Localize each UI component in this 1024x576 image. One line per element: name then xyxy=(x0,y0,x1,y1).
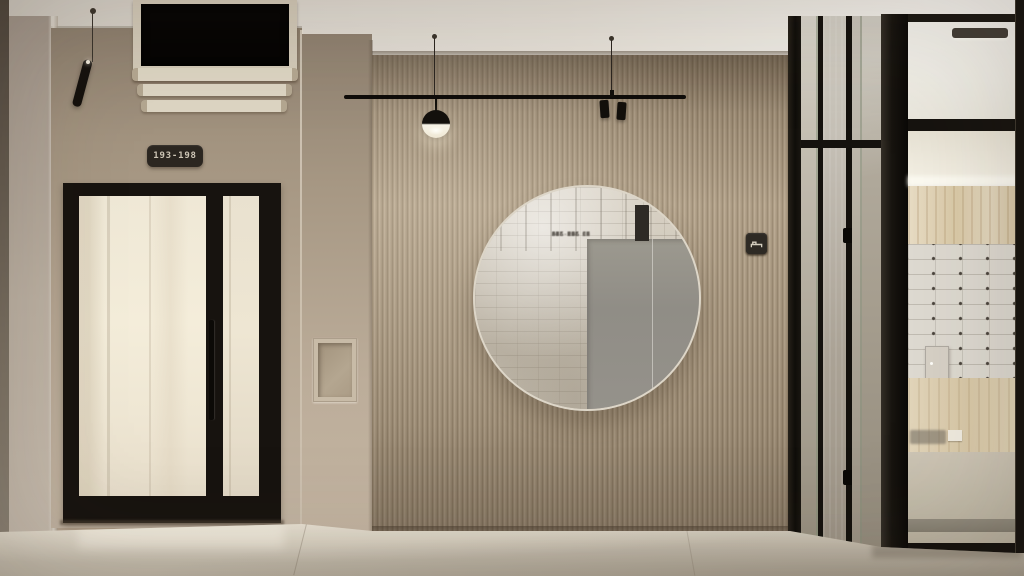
room-ceiling-light xyxy=(952,28,1008,38)
light-track-bar xyxy=(344,95,686,99)
floor-seam xyxy=(686,526,696,575)
mid-wall xyxy=(302,34,372,532)
directory-row: 433-440 xyxy=(552,229,579,240)
left-column xyxy=(9,16,51,536)
lobby-render: 193-198 310-345 346-352 353-360 361-368 xyxy=(0,0,1024,576)
room-wall-card xyxy=(948,430,962,441)
room-upper-wall xyxy=(908,131,1017,181)
mirror-reflection-gray-panel xyxy=(587,239,701,411)
partition-glass-pane xyxy=(852,16,862,556)
partition-transom-bar xyxy=(908,119,1017,131)
pendant-ceiling-mount xyxy=(90,8,96,14)
door-threshold-shadow xyxy=(60,520,284,525)
spotlight-mount xyxy=(610,90,614,97)
diffuser-louver xyxy=(132,68,298,81)
wayfinding-signs xyxy=(746,233,791,277)
cove-light-glow xyxy=(908,176,1017,186)
track-spotlight xyxy=(599,100,609,119)
track-suspension-cable xyxy=(611,40,612,95)
mirror-reflected-fixture xyxy=(635,205,649,241)
globe-pendant-lamp xyxy=(422,110,450,138)
wall-niche xyxy=(313,338,357,402)
floor-seam xyxy=(293,521,308,576)
deposit-box-room xyxy=(908,14,1017,556)
partition-edge-post xyxy=(1015,0,1024,576)
unit-range-label: 193-198 xyxy=(153,151,197,161)
track-suspension-cable xyxy=(434,38,435,95)
door-sidelite-glass xyxy=(223,196,259,496)
open-deposit-box-door xyxy=(925,346,949,379)
partition-transom-rail xyxy=(801,140,881,148)
door-handle xyxy=(209,320,214,420)
mirror-reflected-directory-numbers: 310-345 346-352 353-360 361-368 369-376 … xyxy=(501,229,579,375)
bench-icon xyxy=(749,236,764,251)
room-wood-band xyxy=(908,186,1017,244)
sign-bench xyxy=(746,233,767,254)
unit-range-sign: 193-198 xyxy=(147,145,203,167)
ceiling-display-panel xyxy=(141,4,289,66)
partition-glass-pane xyxy=(801,16,818,556)
room-wall-label xyxy=(910,430,946,444)
pendant-light-glint xyxy=(86,60,90,64)
left-wall-dark-strip xyxy=(0,0,9,576)
pendant-cable xyxy=(92,12,93,62)
wall-niche-recess xyxy=(318,343,352,397)
partition-glass-pane xyxy=(862,16,881,556)
round-mirror: 310-345 346-352 353-360 361-368 369-376 … xyxy=(473,185,701,411)
track-spotlight xyxy=(616,102,626,121)
door-glass-panel xyxy=(79,196,206,496)
entrance-door xyxy=(63,183,281,523)
partition-top-rail xyxy=(908,14,1017,22)
mirror-reflection-seam xyxy=(652,239,653,411)
diffuser-louver xyxy=(137,84,292,96)
partition-mullion xyxy=(788,16,801,556)
room-floor-mat xyxy=(908,519,1017,532)
partition-corner-post xyxy=(881,14,908,556)
diffuser-louver xyxy=(141,100,287,112)
